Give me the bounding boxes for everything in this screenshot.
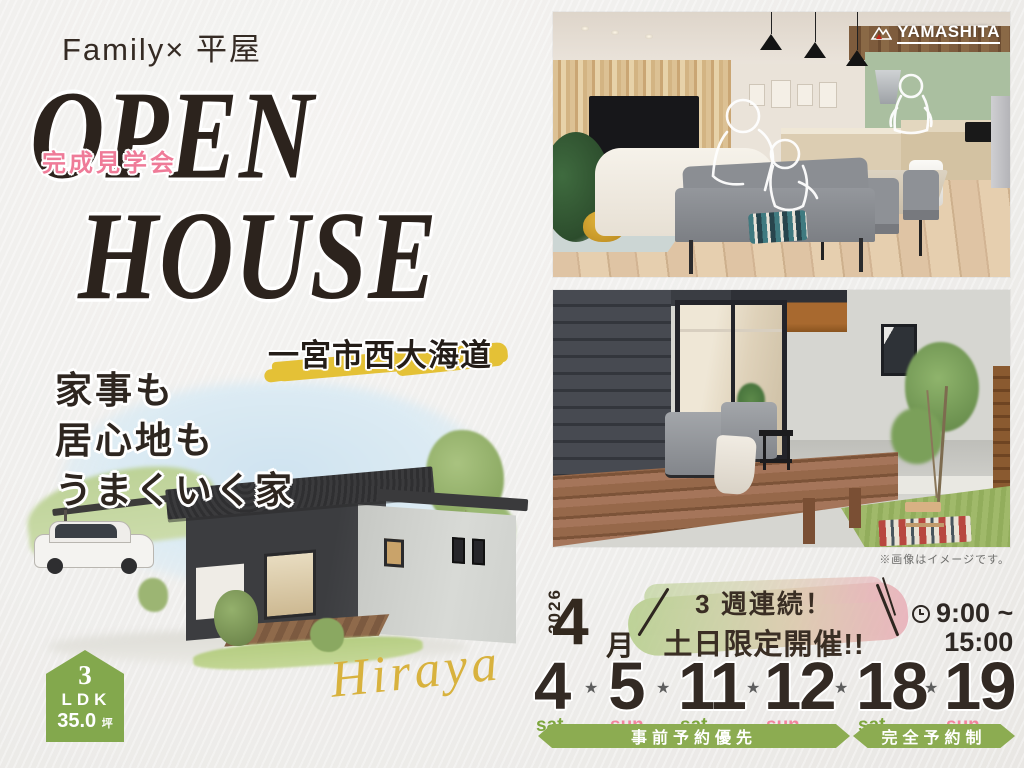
star-separator: ★ — [924, 678, 938, 698]
catch-line-3: うまくいく家 — [55, 466, 295, 516]
promo-line-2: 土日限定開催!! — [628, 621, 900, 663]
brand-logo: YAMASHITA — [870, 22, 1000, 44]
spec-area-unit: 坪 — [102, 718, 113, 730]
event-type-badge: 完成見学会 — [42, 143, 177, 178]
clock-icon — [912, 605, 930, 623]
exterior-render-photo — [553, 290, 1010, 547]
family-line-figures — [553, 12, 1010, 277]
date-row: 4 sat ★ 5 sun ★ 11 sat ★ 12 sun ★ 18 sat… — [532, 660, 1014, 722]
bush — [138, 578, 168, 612]
openhouse-flyer: Family× 平屋 OPEN HOUSE 完成見学会 一宮市西大海道 家事も … — [0, 0, 1024, 768]
window — [472, 538, 485, 565]
main-title: OPEN HOUSE — [30, 76, 510, 317]
promo-block: 3 週連続！ 土日限定開催!! — [628, 584, 900, 663]
image-disclaimer: ※画像はイメージです。 — [553, 551, 1010, 567]
deck-post — [849, 488, 861, 528]
picnic-rug — [878, 516, 971, 547]
location-name: 一宮市西大海道 — [268, 330, 492, 375]
yamashita-mountain-icon — [870, 25, 892, 41]
interior-render-photo: YAMASHITA — [553, 12, 1010, 277]
window — [384, 538, 404, 567]
window — [452, 537, 465, 564]
time-end: 15:00 — [912, 627, 1013, 658]
time-start: 9:00 ~ — [936, 598, 1013, 629]
car-window — [55, 524, 117, 538]
reservation-banner-priority: 事前予約優先 — [538, 724, 850, 748]
bush — [310, 618, 344, 652]
car-wheel — [47, 558, 63, 574]
stool — [905, 502, 941, 512]
title-house: HOUSE — [78, 197, 510, 318]
catch-copy: 家事も 居心地も うまくいく家 — [55, 366, 295, 516]
glass-door — [264, 549, 316, 620]
spec-ldk: LDK — [49, 691, 124, 708]
date-number: 18 — [856, 660, 927, 715]
white-car — [34, 534, 154, 568]
star-separator: ★ — [746, 678, 760, 698]
date-number: 11 — [678, 660, 745, 715]
deck-post — [803, 498, 815, 544]
family-hiraya-subtitle: Family× 平屋 — [62, 24, 262, 69]
date-number: 5 — [608, 660, 644, 715]
location-block: 一宮市西大海道 — [268, 330, 492, 375]
title-open: OPEN — [30, 76, 510, 197]
date-number: 4 — [534, 660, 569, 715]
star-separator: ★ — [656, 678, 670, 698]
date-number: 19 — [944, 660, 1015, 715]
charcoal-siding-wall — [553, 290, 671, 498]
car-wheel — [121, 558, 137, 574]
side-table — [759, 430, 793, 436]
garden-tree — [891, 408, 943, 464]
date-number: 12 — [764, 660, 835, 715]
time-block: 9:00 ~ 15:00 — [912, 598, 1013, 658]
catch-line-2: 居心地も — [55, 416, 295, 466]
catch-line-1: 家事も — [55, 366, 295, 416]
star-separator: ★ — [834, 678, 848, 698]
schedule-month: 4 — [552, 588, 589, 654]
brand-name: YAMASHITA — [897, 22, 1000, 44]
bush — [214, 590, 258, 646]
spec-area: 35.0 坪 — [46, 711, 124, 731]
star-separator: ★ — [584, 678, 598, 698]
reservation-banner-full: 完全予約制 — [853, 724, 1015, 748]
spec-area-value: 35.0 — [57, 710, 96, 732]
